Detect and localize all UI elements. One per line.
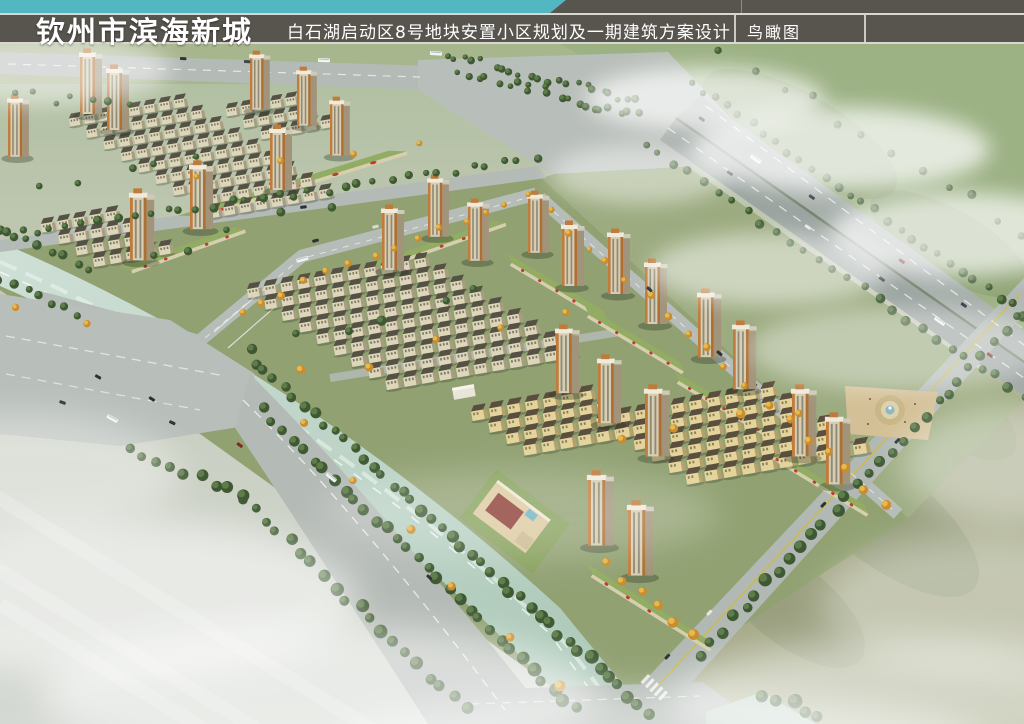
divider	[864, 15, 866, 42]
presentation-board: 钦州市滨海新城 白石湖启动区8号地块安置小区规划及一期建筑方案设计 鸟瞰图	[0, 0, 1024, 724]
design-title: 白石湖启动区8号地块安置小区规划及一期建筑方案设计	[287, 18, 731, 43]
divider	[734, 15, 736, 42]
aerial-rendering	[0, 44, 1024, 724]
rendering-area	[0, 44, 1024, 724]
divider	[741, 0, 742, 13]
project-title: 钦州市滨海新城	[36, 9, 253, 51]
title-bar: 钦州市滨海新城 白石湖启动区8号地块安置小区规划及一期建筑方案设计 鸟瞰图	[0, 0, 1024, 44]
view-label: 鸟瞰图	[747, 19, 801, 43]
title-bar-row: 钦州市滨海新城 白石湖启动区8号地块安置小区规划及一期建筑方案设计 鸟瞰图	[0, 15, 1024, 42]
